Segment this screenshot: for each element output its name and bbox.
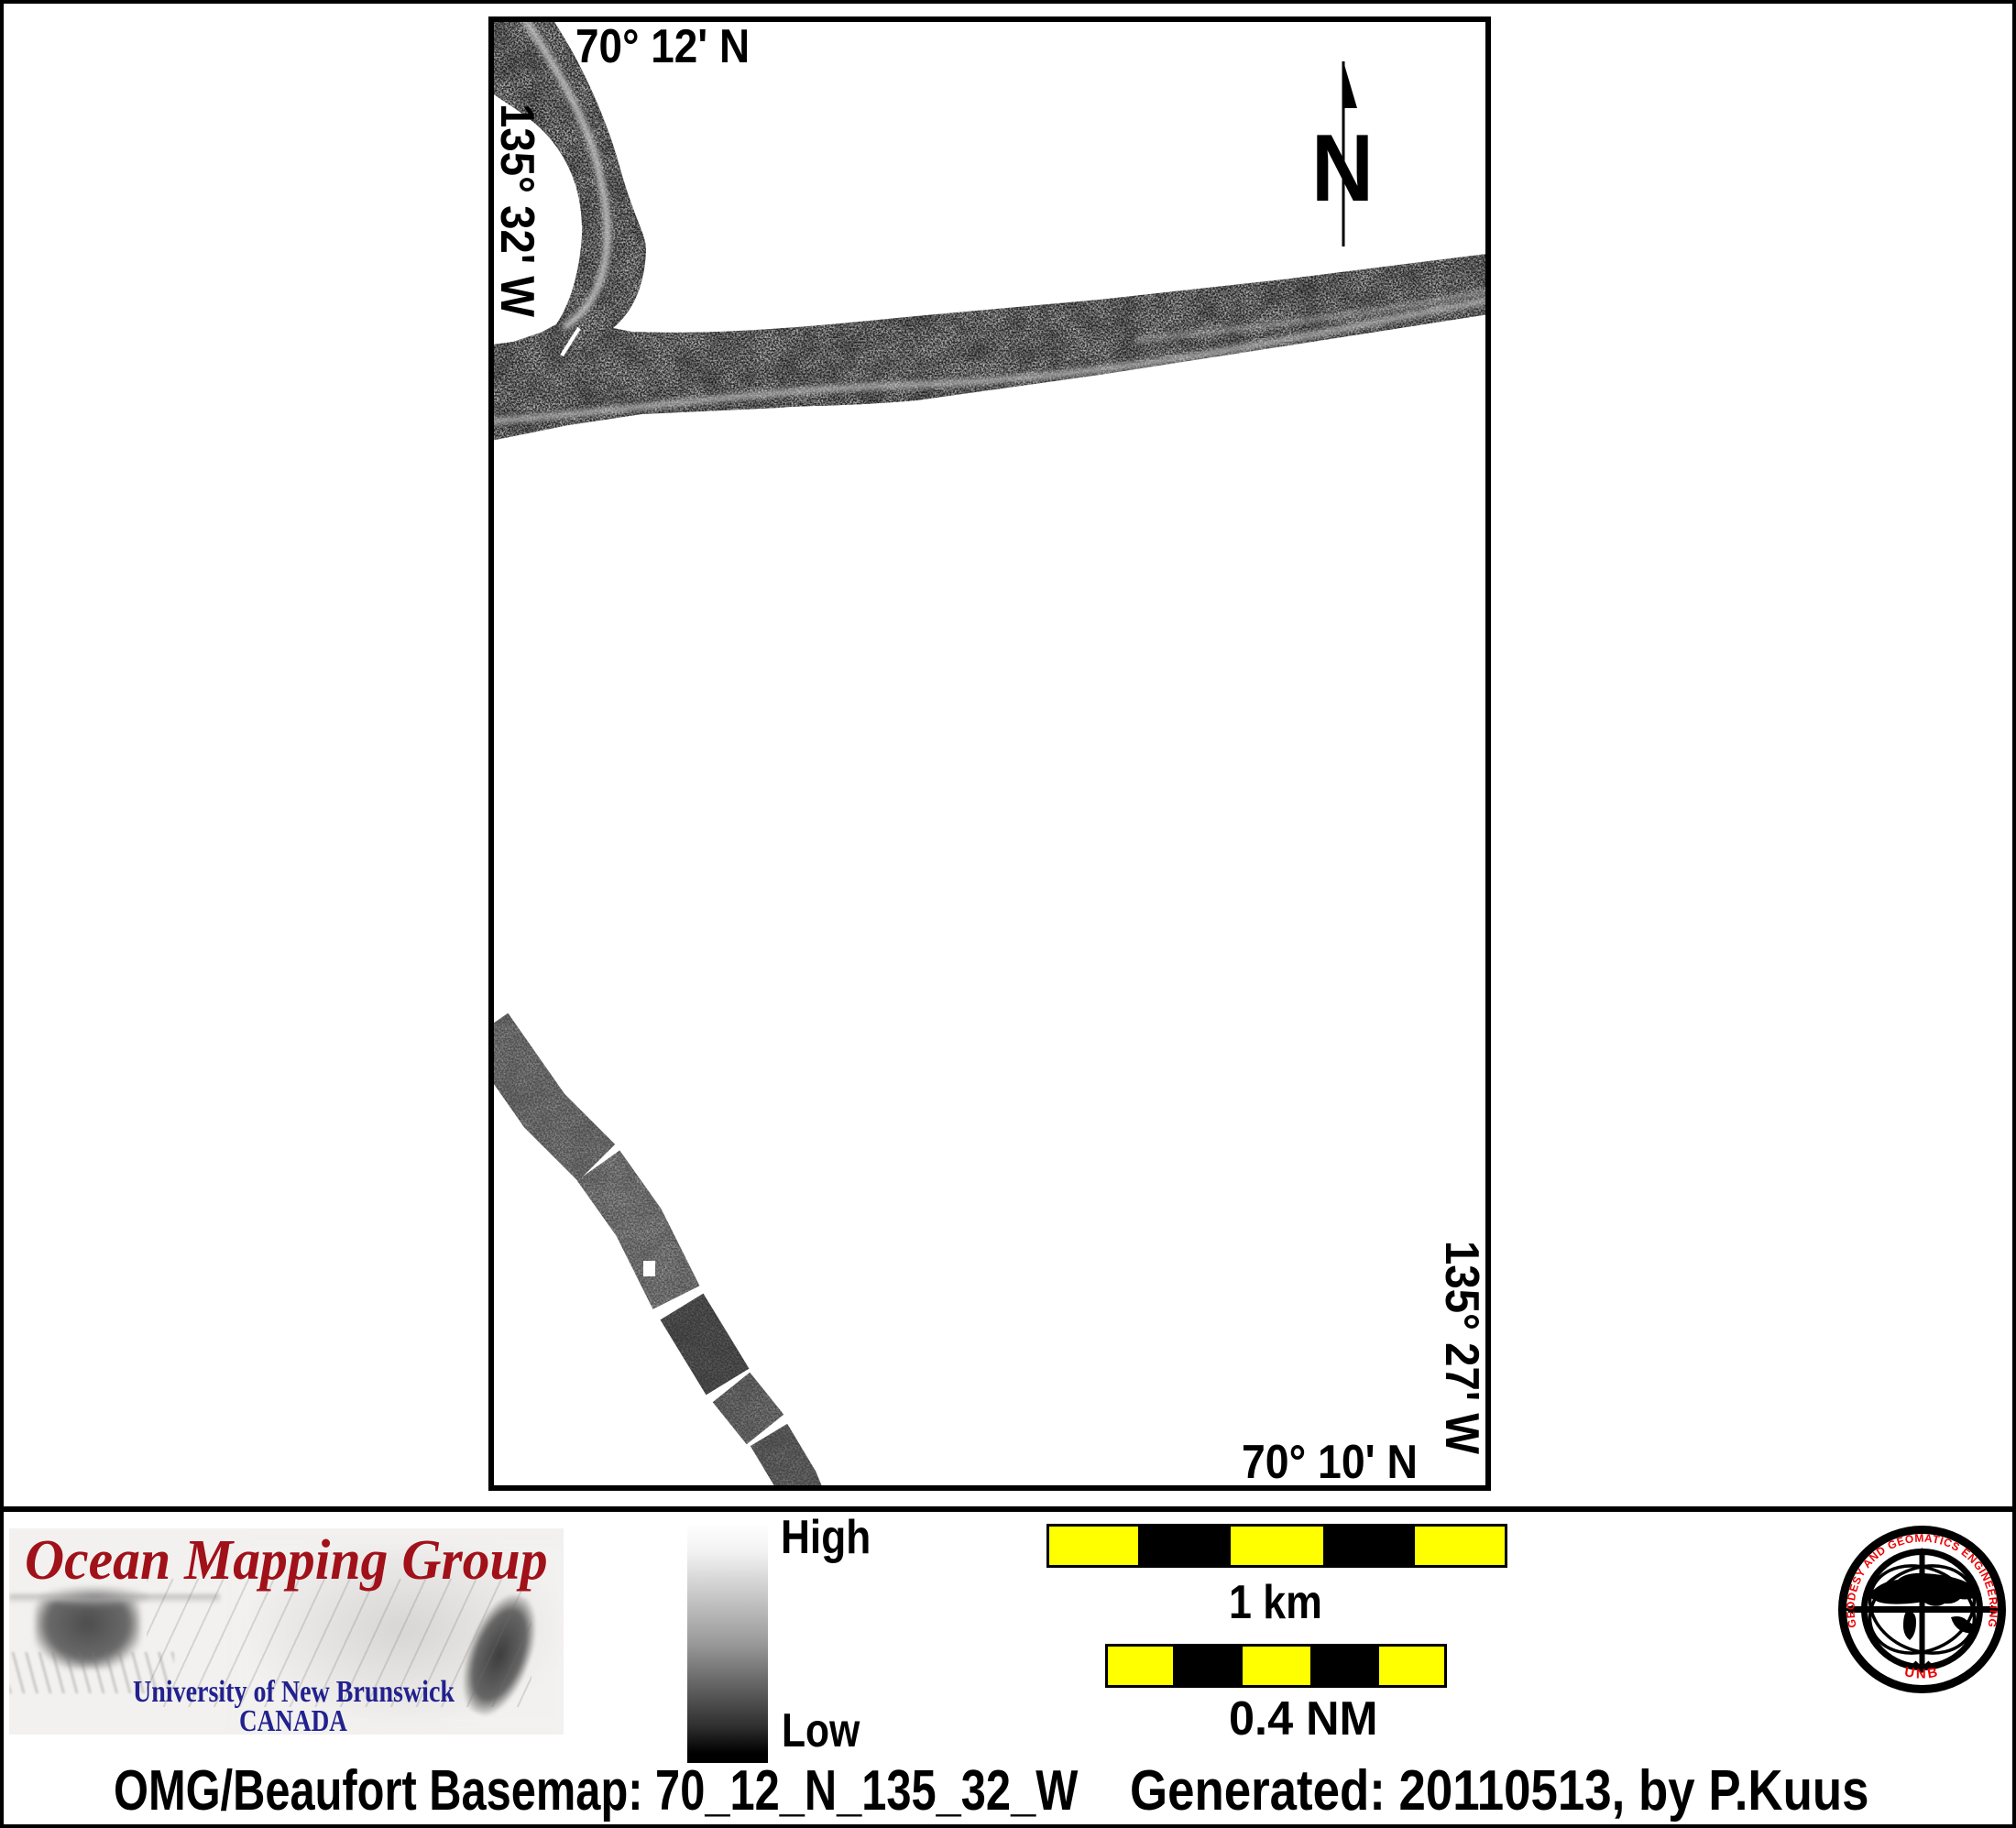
svg-text:N: N: [1311, 115, 1374, 222]
svg-text:UNB: UNB: [1903, 1664, 1941, 1681]
